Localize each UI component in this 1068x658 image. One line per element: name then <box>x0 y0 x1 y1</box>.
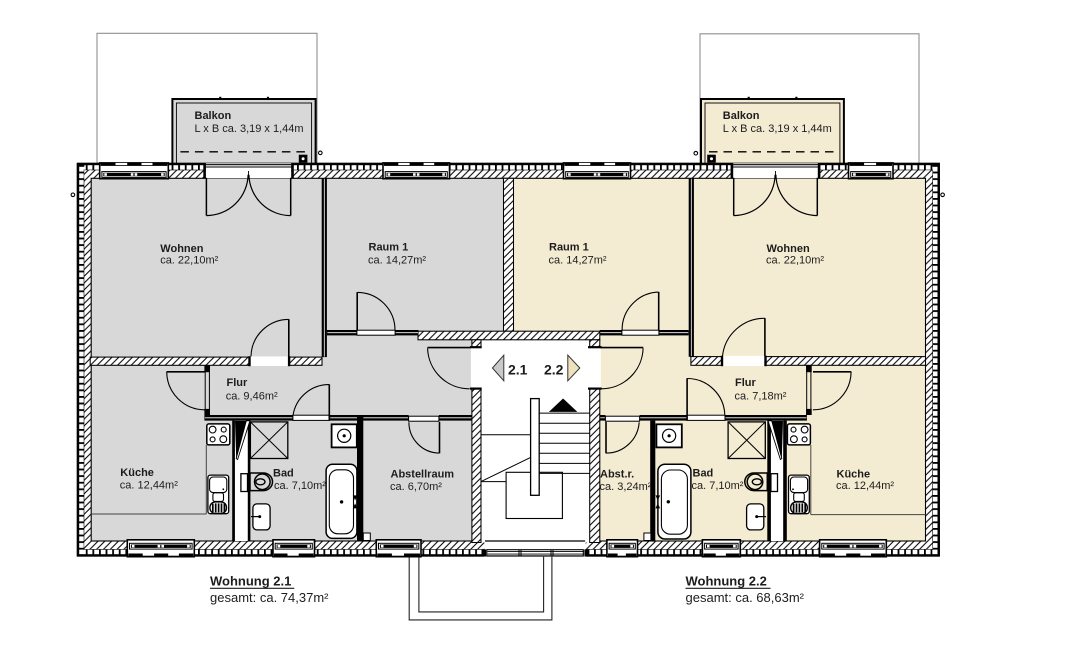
svg-text:ca. 7,10m²: ca. 7,10m² <box>692 480 744 492</box>
svg-text:Raum 1: Raum 1 <box>369 242 409 254</box>
svg-text:gesamt: ca. 74,37m²: gesamt: ca. 74,37m² <box>210 590 329 605</box>
svg-text:Wohnung 2.2: Wohnung 2.2 <box>686 574 767 589</box>
svg-text:ca. 12,44m²: ca. 12,44m² <box>120 480 178 492</box>
svg-text:Wohnen: Wohnen <box>767 243 810 255</box>
svg-text:2.2: 2.2 <box>544 362 564 378</box>
svg-text:Balkon: Balkon <box>723 110 760 122</box>
svg-text:gesamt: ca. 68,63m²: gesamt: ca. 68,63m² <box>686 590 805 605</box>
svg-text:Bad: Bad <box>273 468 294 480</box>
svg-text:ca. 14,27m²: ca. 14,27m² <box>368 255 426 267</box>
svg-text:L x B ca. 3,19 x 1,44m: L x B ca. 3,19 x 1,44m <box>195 123 304 135</box>
svg-text:Abst.r.: Abst.r. <box>600 469 634 481</box>
svg-text:ca. 9,46m²: ca. 9,46m² <box>226 391 278 403</box>
svg-text:L x B ca. 3,19 x 1,44m: L x B ca. 3,19 x 1,44m <box>723 123 832 135</box>
svg-text:Wohnen: Wohnen <box>160 243 203 255</box>
svg-text:Bad: Bad <box>693 468 714 480</box>
svg-text:ca. 22,10m²: ca. 22,10m² <box>766 255 824 267</box>
svg-text:ca. 7,10m²: ca. 7,10m² <box>274 480 326 492</box>
svg-text:Abstellraum: Abstellraum <box>391 469 455 481</box>
svg-text:Raum 1: Raum 1 <box>549 242 589 254</box>
svg-text:Küche: Küche <box>837 469 871 481</box>
svg-text:ca. 7,18m²: ca. 7,18m² <box>735 391 787 403</box>
svg-text:Wohnung 2.1: Wohnung 2.1 <box>210 574 291 589</box>
svg-text:Flur: Flur <box>735 377 756 389</box>
svg-text:ca. 22,10m²: ca. 22,10m² <box>160 255 218 267</box>
svg-text:ca. 12,44m²: ca. 12,44m² <box>836 480 894 492</box>
svg-text:ca. 3,24m²: ca. 3,24m² <box>600 481 652 493</box>
svg-text:Flur: Flur <box>227 377 248 389</box>
svg-text:2.1: 2.1 <box>508 362 528 378</box>
svg-text:Küche: Küche <box>120 467 154 479</box>
svg-text:Balkon: Balkon <box>195 110 232 122</box>
svg-text:ca. 14,27m²: ca. 14,27m² <box>549 255 607 267</box>
svg-text:ca. 6,70m²: ca. 6,70m² <box>390 481 442 493</box>
